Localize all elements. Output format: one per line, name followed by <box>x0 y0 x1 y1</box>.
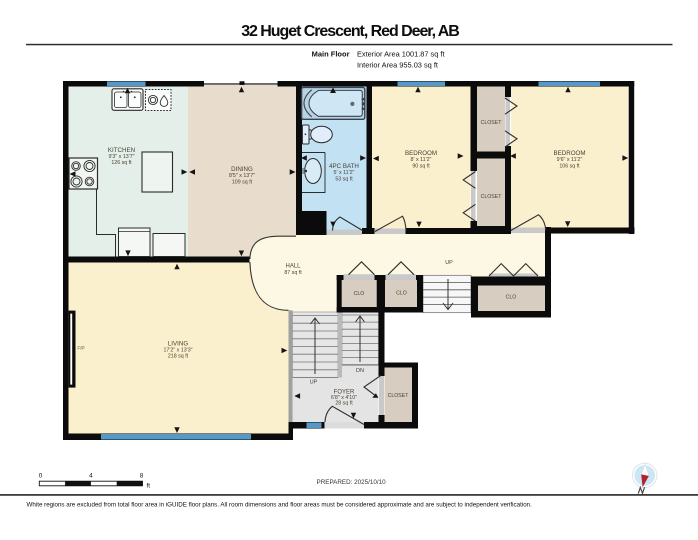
svg-text:5' x 11'2": 5' x 11'2" <box>334 170 355 176</box>
svg-text:87 sq ft: 87 sq ft <box>284 270 302 276</box>
svg-text:ft: ft <box>147 482 151 489</box>
svg-text:90 sq ft: 90 sq ft <box>412 163 430 169</box>
svg-text:CLOSET: CLOSET <box>481 120 503 126</box>
svg-text:CLOSET: CLOSET <box>388 393 410 399</box>
svg-text:4PC BATH: 4PC BATH <box>329 163 359 170</box>
svg-text:CLO: CLO <box>354 291 365 297</box>
svg-text:Main Floor: Main Floor <box>312 50 350 59</box>
svg-text:126 sq ft: 126 sq ft <box>111 160 132 166</box>
svg-text:UP: UP <box>445 260 453 266</box>
svg-text:DN: DN <box>356 368 364 374</box>
svg-text:4: 4 <box>89 472 93 479</box>
svg-text:0: 0 <box>39 472 43 479</box>
svg-text:White regions are excluded fro: White regions are excluded from total fl… <box>27 501 533 508</box>
svg-text:F/P: F/P <box>77 346 84 351</box>
svg-text:BEDROOM: BEDROOM <box>554 150 586 157</box>
svg-text:32 Huget Crescent, Red Deer, A: 32 Huget Crescent, Red Deer, AB <box>241 23 459 40</box>
svg-text:KITCHEN: KITCHEN <box>108 147 135 154</box>
svg-text:Exterior Area 1001.87 sq ft: Exterior Area 1001.87 sq ft <box>357 50 445 59</box>
svg-text:53 sq ft: 53 sq ft <box>335 176 353 182</box>
svg-text:CLO: CLO <box>396 291 407 297</box>
svg-text:9'6" x 11'2": 9'6" x 11'2" <box>557 157 583 163</box>
svg-text:8: 8 <box>140 472 144 479</box>
svg-text:28 sq ft: 28 sq ft <box>335 401 353 407</box>
svg-text:Interior Area 955.03 sq ft: Interior Area 955.03 sq ft <box>357 60 438 69</box>
svg-text:BEDROOM: BEDROOM <box>405 150 437 157</box>
svg-text:LIVING: LIVING <box>168 341 188 348</box>
svg-text:9'3" x 13'7": 9'3" x 13'7" <box>108 154 134 160</box>
svg-text:DINING: DINING <box>231 166 253 173</box>
svg-text:109 sq ft: 109 sq ft <box>232 179 253 185</box>
svg-text:PREPARED: 2025/10/10: PREPARED: 2025/10/10 <box>317 479 387 486</box>
svg-text:8'5" x 13'7": 8'5" x 13'7" <box>229 173 255 179</box>
svg-text:UP: UP <box>310 380 318 386</box>
svg-text:218 sq ft: 218 sq ft <box>168 354 189 360</box>
svg-text:HALL: HALL <box>285 264 301 270</box>
svg-text:CLO: CLO <box>506 295 517 301</box>
svg-text:106 sq ft: 106 sq ft <box>559 163 580 169</box>
svg-text:CLOSET: CLOSET <box>481 194 503 200</box>
svg-text:8' x 11'2": 8' x 11'2" <box>411 157 432 163</box>
